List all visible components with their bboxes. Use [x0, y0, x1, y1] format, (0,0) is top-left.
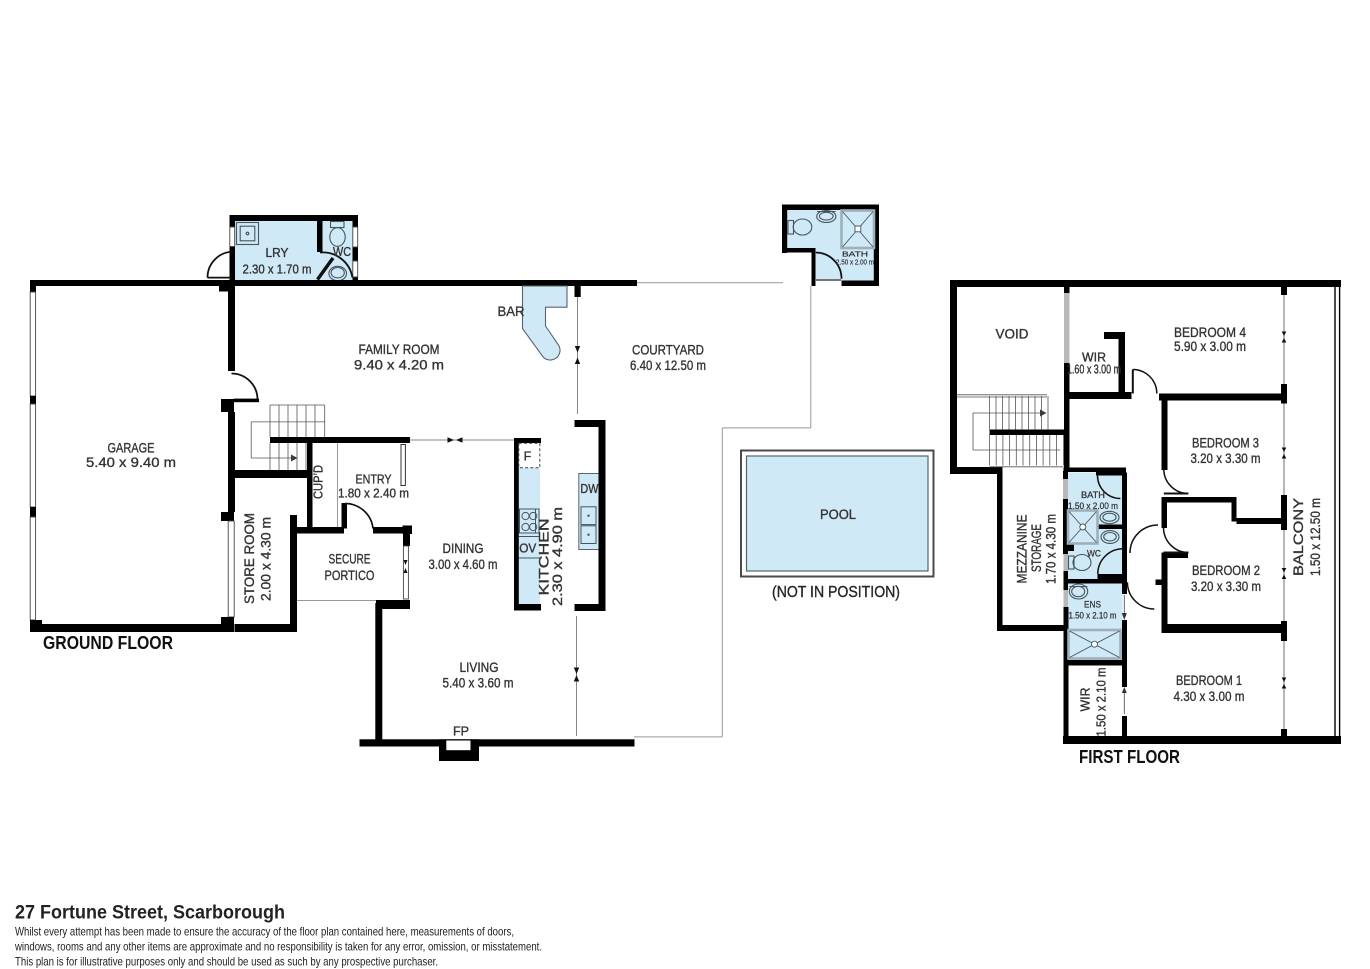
svg-text:WC: WC [333, 245, 351, 259]
svg-text:5.40 x 3.60 m: 5.40 x 3.60 m [443, 675, 514, 691]
svg-text:9.40 x 4.20 m: 9.40 x 4.20 m [354, 357, 444, 373]
svg-text:5.40 x 9.40 m: 5.40 x 9.40 m [86, 454, 176, 470]
svg-text:6.40 x 12.50 m: 6.40 x 12.50 m [630, 357, 706, 373]
svg-text:STORE ROOM: STORE ROOM [241, 513, 257, 604]
svg-text:COURTYARD: COURTYARD [632, 342, 704, 358]
svg-text:GROUND FLOOR: GROUND FLOOR [43, 633, 173, 653]
svg-text:SECURE: SECURE [329, 551, 371, 567]
svg-text:windows, rooms and any other i: windows, rooms and any other items are a… [14, 940, 542, 954]
svg-text:BAR: BAR [498, 303, 525, 319]
svg-text:3.20 x 3.30 m: 3.20 x 3.30 m [1191, 578, 1261, 594]
svg-text:2.50 x 2.00 m: 2.50 x 2.00 m [836, 258, 874, 267]
svg-text:1.50 x 12.50 m: 1.50 x 12.50 m [1307, 498, 1323, 576]
svg-text:2.30 x 4.90 m: 2.30 x 4.90 m [549, 507, 565, 606]
svg-text:FIRST FLOOR: FIRST FLOOR [1079, 747, 1180, 767]
svg-text:1.60 x 3.00 m: 1.60 x 3.00 m [1067, 363, 1121, 377]
svg-text:3.20 x 3.30 m: 3.20 x 3.30 m [1191, 450, 1261, 466]
svg-text:DW: DW [580, 482, 598, 496]
svg-text:4.30 x 3.00 m: 4.30 x 3.00 m [1174, 688, 1245, 704]
svg-text:F: F [524, 450, 532, 464]
svg-text:1.50 x 2.10 m: 1.50 x 2.10 m [1095, 668, 1109, 737]
svg-text:1.80 x 2.40 m: 1.80 x 2.40 m [338, 487, 409, 501]
svg-text:VOID: VOID [996, 326, 1029, 342]
svg-text:BEDROOM 2: BEDROOM 2 [1192, 562, 1260, 578]
svg-text:POOL: POOL [820, 506, 856, 522]
svg-text:LRY: LRY [266, 246, 290, 260]
svg-text:3.00 x 4.60 m: 3.00 x 4.60 m [429, 556, 498, 572]
svg-text:BALCONY: BALCONY [1290, 497, 1306, 576]
svg-text:(NOT IN POSITION): (NOT IN POSITION) [772, 584, 900, 601]
svg-text:Whilst every attempt has been: Whilst every attempt has been made to en… [15, 925, 514, 939]
svg-text:1.70 x 4.30 m: 1.70 x 4.30 m [1043, 514, 1059, 584]
svg-text:BATH: BATH [1081, 490, 1105, 500]
svg-text:BEDROOM 1: BEDROOM 1 [1176, 672, 1242, 688]
svg-text:OV: OV [519, 542, 537, 556]
svg-text:WIR: WIR [1079, 688, 1093, 712]
svg-text:CUP’D: CUP’D [312, 465, 326, 499]
svg-text:1.50 x 2.10 m: 1.50 x 2.10 m [1069, 611, 1117, 621]
svg-text:FP: FP [453, 725, 469, 739]
svg-text:27 Fortune Street, Scarborough: 27 Fortune Street, Scarborough [15, 902, 285, 924]
svg-text:DINING: DINING [443, 540, 484, 556]
svg-text:ENTRY: ENTRY [356, 473, 393, 487]
svg-text:This plan is for illustrative: This plan is for illustrative purposes o… [15, 955, 438, 969]
svg-text:ENS: ENS [1084, 600, 1101, 610]
svg-text:LIVING: LIVING [460, 659, 499, 675]
svg-text:BEDROOM 3: BEDROOM 3 [1192, 435, 1259, 451]
svg-text:2.30 x 1.70 m: 2.30 x 1.70 m [243, 263, 312, 277]
svg-text:PORTICO: PORTICO [325, 567, 375, 583]
svg-text:2.00 x 4.30 m: 2.00 x 4.30 m [258, 517, 274, 601]
svg-text:FAMILY ROOM: FAMILY ROOM [359, 341, 440, 357]
svg-text:WC: WC [1087, 549, 1101, 559]
svg-text:1.50 x 2.00 m: 1.50 x 2.00 m [1068, 501, 1118, 511]
svg-text:5.90 x 3.00 m: 5.90 x 3.00 m [1174, 338, 1246, 354]
